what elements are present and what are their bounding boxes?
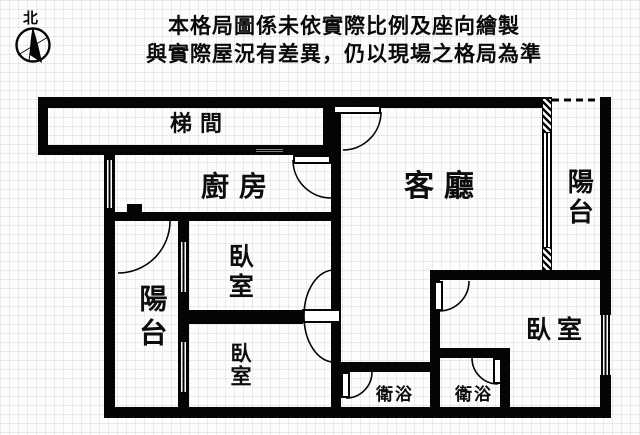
door-arc-kitchen	[293, 160, 331, 198]
door-arc-entry	[343, 112, 381, 150]
room-label-bathroom-left: 衛浴	[376, 386, 414, 404]
room-label-bathroom-right: 衛浴	[455, 386, 493, 404]
door-arc-bedrooms	[304, 270, 334, 362]
door-arcs-layer	[0, 0, 640, 435]
room-label-stairwell: 梯間	[170, 112, 230, 135]
door-arc-balcony-left	[118, 221, 170, 273]
room-label-living-room: 客廳	[404, 171, 484, 203]
room-label-bedroom-middle: 臥室	[226, 243, 252, 303]
room-label-bedroom-bottom: 臥室	[228, 342, 250, 388]
room-label-balcony-left: 陽台	[137, 284, 166, 352]
room-label-kitchen: 廚房	[201, 172, 277, 201]
door-arc-bedroom-right	[439, 281, 469, 311]
door-arc-bathroom-left	[346, 372, 372, 398]
floor-plan: 本格局圖係未依實際比例及座向繪製 與實際屋況有差異，仍以現場之格局為準 北	[0, 0, 640, 435]
room-label-balcony-right: 陽台	[565, 168, 592, 228]
room-label-bedroom-right: 臥室	[526, 317, 588, 343]
door-arc-bathroom-right	[472, 358, 498, 384]
